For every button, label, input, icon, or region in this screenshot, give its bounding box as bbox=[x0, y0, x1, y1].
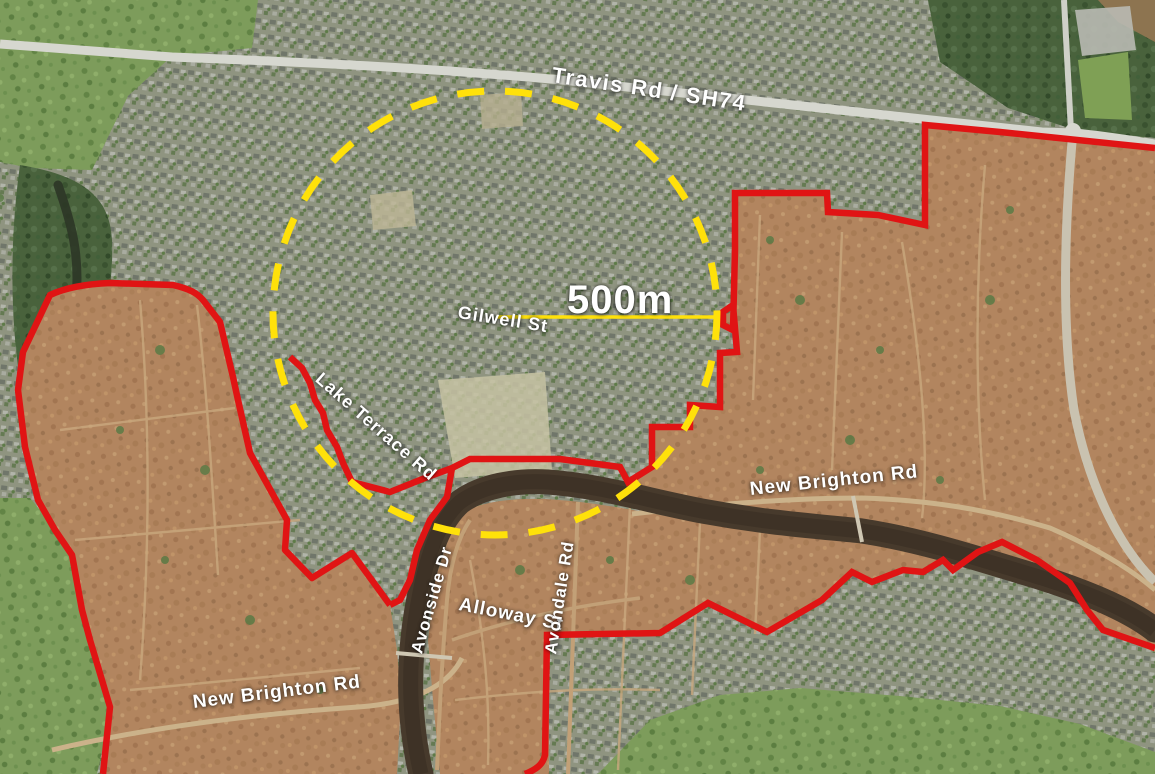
aerial-map: Travis Rd / SH74 500m Gilwell St Lake Te… bbox=[0, 0, 1155, 774]
scale-label-500m: 500m bbox=[567, 278, 673, 323]
cleared-pad-top-right bbox=[1075, 6, 1136, 56]
aerial-basemap bbox=[0, 0, 1155, 774]
bare-field-2 bbox=[370, 190, 416, 230]
bare-field-3 bbox=[480, 92, 523, 129]
field-top-right bbox=[1078, 52, 1132, 120]
